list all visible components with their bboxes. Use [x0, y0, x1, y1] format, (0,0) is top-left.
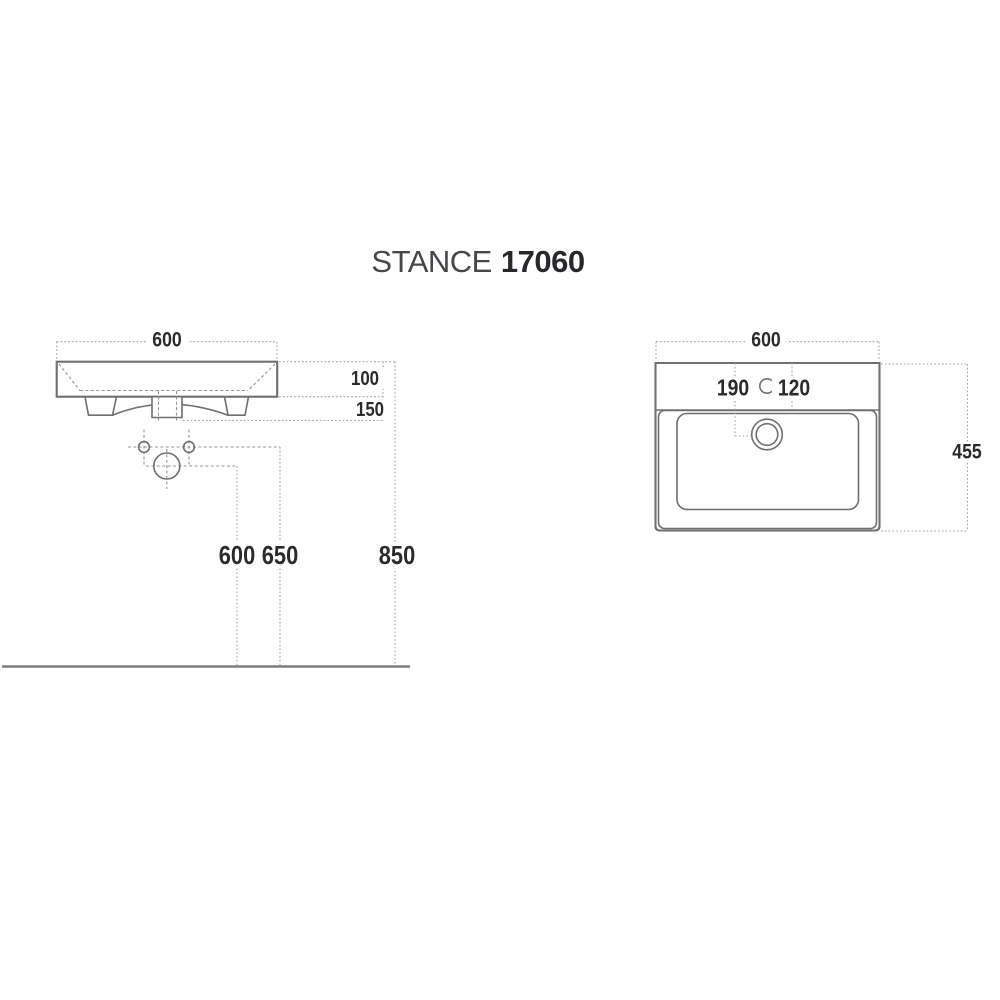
front-basin-outline	[57, 362, 278, 397]
plan-drain-inner-ring	[756, 424, 778, 446]
front-drain-box-fill	[152, 398, 182, 418]
rim-height-label: 850	[372, 542, 421, 568]
drain-setback-label: 190	[711, 377, 755, 400]
drawing-canvas	[0, 0, 1000, 1000]
plan-width-label: 600	[745, 330, 786, 351]
plan-outer-outline	[656, 363, 880, 531]
front-right-foot	[225, 397, 249, 416]
plan-depth-label: 455	[946, 442, 987, 463]
plan-view	[656, 342, 968, 531]
fixing-holes-height-label: 650	[255, 542, 304, 568]
technical-drawing-page: STANCE17060	[0, 0, 1000, 1000]
tap-setback-label: 120	[772, 377, 816, 400]
fitting-depth-label: 150	[350, 400, 389, 420]
plan-bowl-inner	[677, 414, 859, 510]
plan-bowl-outer	[659, 411, 877, 529]
fixing-holes-crosshairs	[128, 430, 280, 465]
front-bowl-hidden-edges	[59, 364, 275, 391]
front-view	[2, 342, 410, 667]
apron-height-label: 100	[345, 369, 384, 389]
front-left-foot	[85, 397, 117, 416]
drain-height-label: 600	[212, 542, 261, 568]
front-width-label: 600	[146, 330, 187, 351]
